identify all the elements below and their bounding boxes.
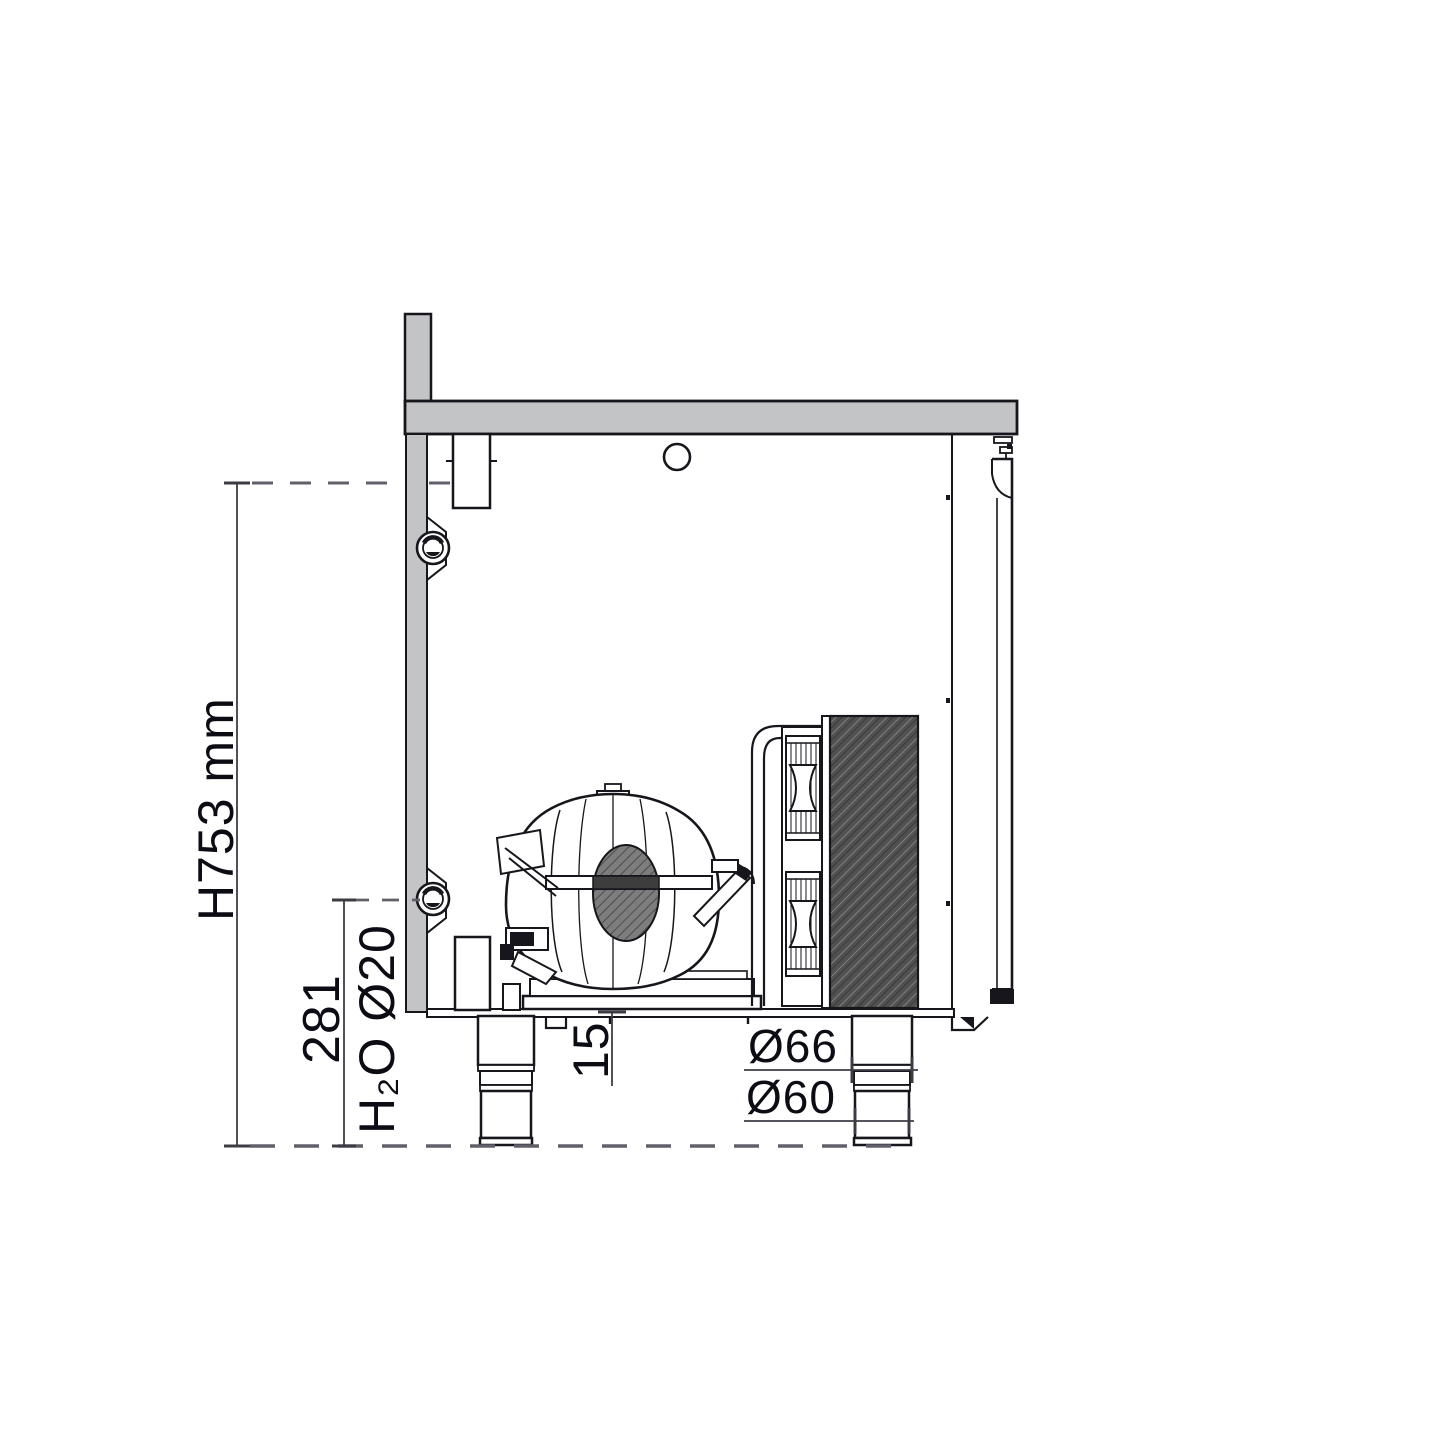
- dim-water-drain-label: H₂O Ø20: [349, 924, 405, 1134]
- rear-bracket: [453, 434, 490, 508]
- compressor-base-plate: [523, 996, 761, 1009]
- door-profile: [990, 437, 1014, 1004]
- dimension-drain-height: 281: [293, 900, 356, 1146]
- compressor-hatched-core: [593, 845, 659, 941]
- door-outer-edge: [992, 459, 1012, 989]
- water-drain-fitting: [417, 883, 449, 915]
- screw-dot: [946, 901, 950, 906]
- dimension-base-offset: 15: [563, 1012, 626, 1086]
- backsplash: [405, 314, 431, 402]
- worktop: [405, 401, 1017, 434]
- support-block: [503, 984, 520, 1010]
- technical-drawing-canvas: H753 mm 281 H₂O Ø20 15 Ø66: [0, 0, 1445, 1445]
- right-leg: [852, 1016, 912, 1145]
- door-top-chamfer: [992, 459, 1012, 498]
- dim-drain-height-label: 281: [293, 974, 351, 1064]
- door-foot: [990, 989, 1014, 1004]
- dimension-overall-height: H753 mm: [188, 483, 250, 1146]
- screw-dot: [946, 495, 950, 500]
- dim-overall-height-label: H753 mm: [188, 697, 244, 921]
- dim-leg-lower-diameter-label: Ø60: [746, 1071, 836, 1123]
- condenser-hatch: [830, 716, 918, 1008]
- left-leg: [478, 1016, 534, 1145]
- screw-dot: [946, 698, 950, 703]
- dim-base-offset-label: 15: [563, 1021, 619, 1079]
- drain-duct: [455, 937, 490, 1010]
- compressor-assembly: [497, 784, 761, 1009]
- condenser-coil: [822, 716, 918, 1008]
- counter-section-svg: H753 mm 281 H₂O Ø20 15 Ø66: [0, 0, 1445, 1445]
- front-panel: [946, 434, 952, 1012]
- fan-unit: [782, 727, 822, 1006]
- dim-leg-upper-diameter-label: Ø66: [748, 1020, 838, 1072]
- upper-pipe-fitting: [417, 532, 449, 564]
- ceiling-hole: [664, 444, 690, 470]
- back-wall: [406, 434, 427, 1012]
